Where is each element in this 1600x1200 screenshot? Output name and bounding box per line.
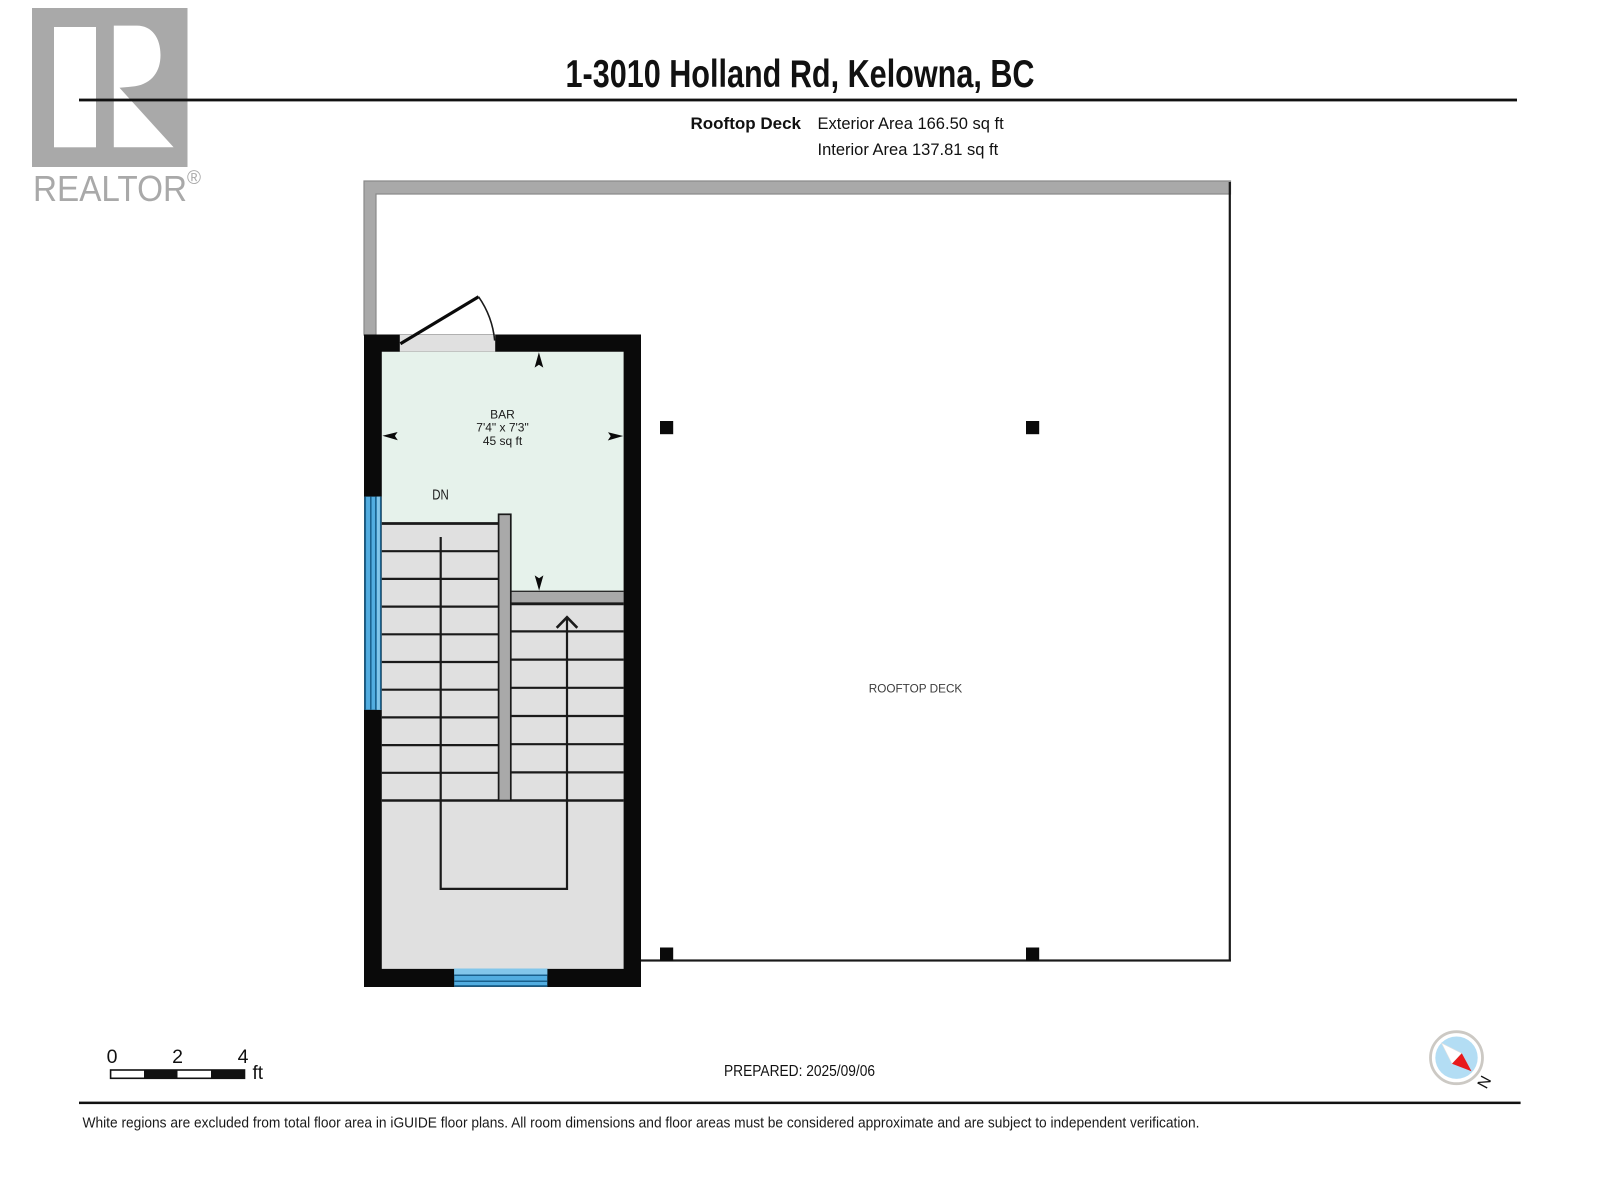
- svg-text:Interior Area 137.81 sq ft: Interior Area 137.81 sq ft: [818, 141, 999, 159]
- svg-text:ROOFTOP DECK: ROOFTOP DECK: [869, 682, 963, 696]
- svg-text:2: 2: [172, 1046, 183, 1068]
- svg-text:0: 0: [107, 1046, 118, 1068]
- svg-text:BAR: BAR: [490, 407, 515, 421]
- svg-text:Exterior Area 166.50 sq ft: Exterior Area 166.50 sq ft: [818, 115, 1005, 133]
- svg-text:®: ®: [187, 168, 201, 189]
- svg-text:White regions are excluded fro: White regions are excluded from total fl…: [83, 1115, 1200, 1132]
- svg-text:45 sq ft: 45 sq ft: [483, 434, 523, 448]
- svg-text:PREPARED: 2025/09/06: PREPARED: 2025/09/06: [724, 1063, 875, 1080]
- svg-text:1-3010 Holland Rd, Kelowna, BC: 1-3010 Holland Rd, Kelowna, BC: [566, 53, 1035, 96]
- svg-text:ft: ft: [253, 1063, 264, 1084]
- svg-text:4: 4: [238, 1046, 249, 1068]
- svg-text:Rooftop Deck: Rooftop Deck: [691, 114, 802, 133]
- svg-text:DN: DN: [432, 487, 449, 504]
- svg-text:REALTOR: REALTOR: [33, 168, 187, 209]
- svg-text:7'4" x 7'3": 7'4" x 7'3": [476, 421, 528, 435]
